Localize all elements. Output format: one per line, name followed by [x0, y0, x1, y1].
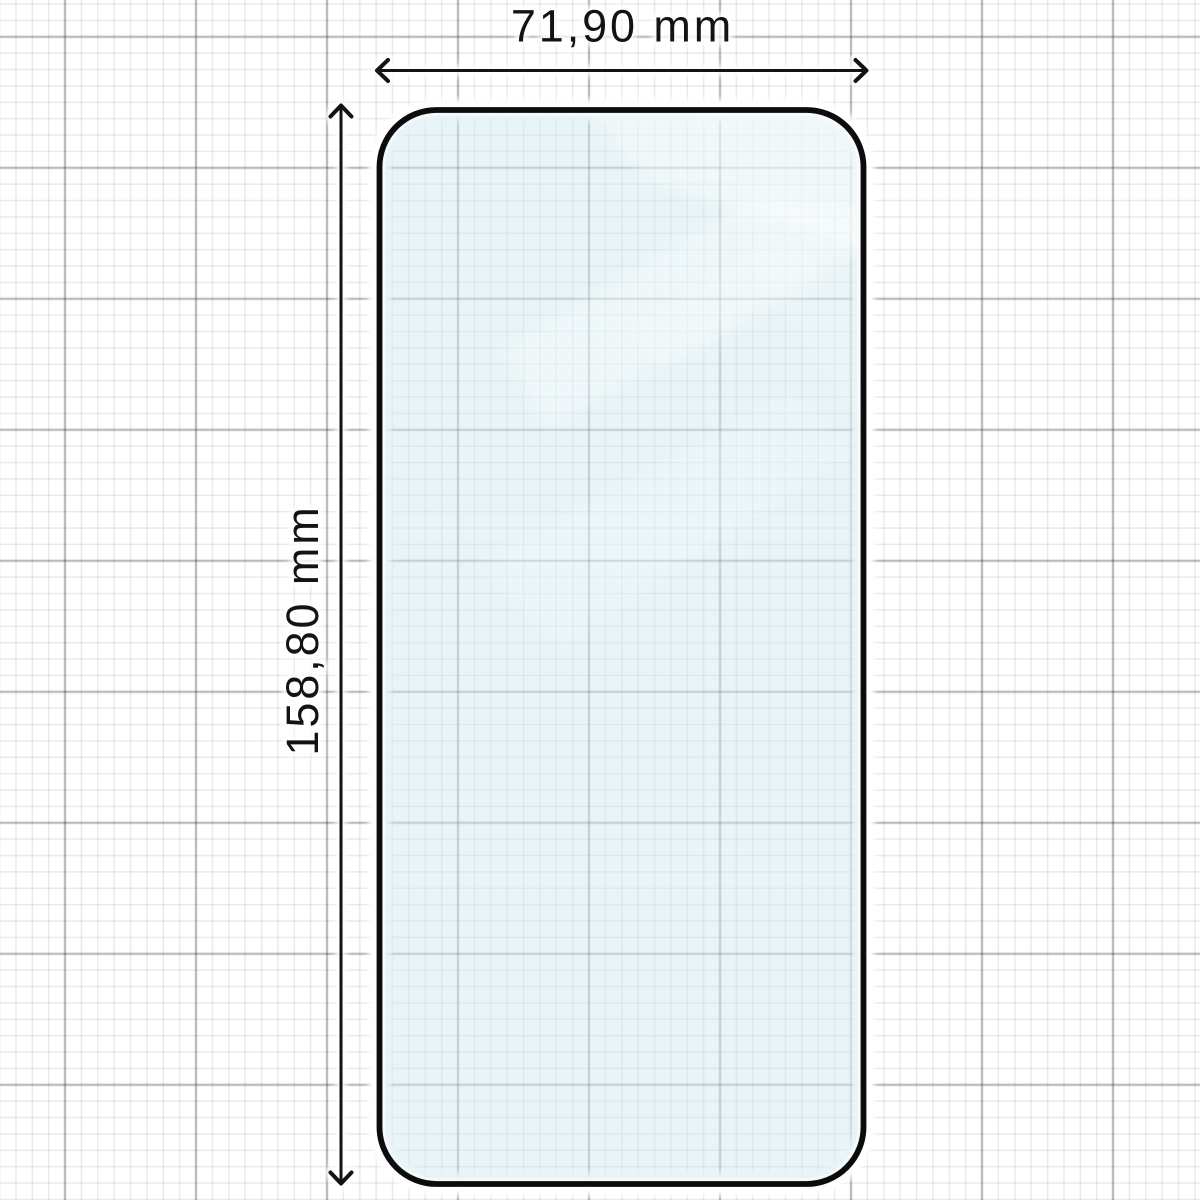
svg-text:158,80 mm: 158,80 mm — [277, 504, 328, 755]
svg-text:71,90 mm: 71,90 mm — [511, 1, 734, 52]
